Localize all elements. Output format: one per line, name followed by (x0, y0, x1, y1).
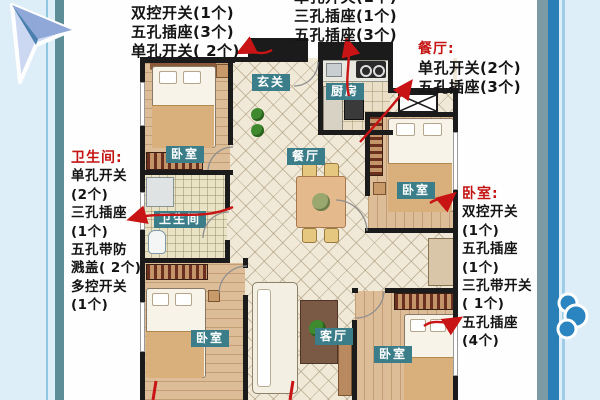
room-label-bedroom-bottom-left: 卧室 (191, 330, 229, 347)
frame-right-gray-stripe (537, 0, 548, 400)
annotation-item: 溅盖( 2个) (71, 259, 141, 277)
annotation-item: 三孔插座 (71, 204, 141, 222)
dining-chair (324, 228, 339, 243)
annotation-item: 单孔开关(2个) (418, 59, 521, 78)
stove (356, 61, 386, 78)
annotation-item: 五孔插座 (462, 314, 532, 332)
bed (152, 66, 216, 148)
annotation-item-clipped: 单孔开关(1个) (294, 0, 397, 7)
room-label-dining: 餐厅 (287, 148, 325, 165)
wall-segment (318, 130, 393, 135)
room-label-bedroom-right: 卧室 (397, 182, 435, 199)
room-label-living: 客厅 (315, 328, 353, 345)
nightstand (373, 182, 386, 195)
plant (251, 108, 264, 121)
wardrobe (146, 264, 208, 280)
annotation-item: 五孔插座(3个) (131, 23, 240, 42)
window (453, 322, 458, 376)
screenshot-root: 玄关 厨房 餐厅 卧室 卫生间 卧室 卧室 客厅 卧室 (0, 0, 600, 400)
plant (251, 124, 264, 137)
wall-segment (352, 288, 358, 293)
annotation-item: (4个) (462, 332, 532, 350)
annotation-header: 卫生间: (71, 149, 141, 167)
annotation-item: 五孔带防 (71, 241, 141, 259)
annotation-item: 双控开关 (462, 203, 532, 221)
dining-table (296, 176, 346, 228)
room-label-bedroom-top-left: 卧室 (166, 146, 204, 163)
wall-segment (243, 258, 248, 268)
wall-segment (140, 170, 233, 175)
annotation-item: (1个) (462, 259, 532, 277)
frame-right-light-line (562, 0, 565, 400)
window (140, 82, 145, 126)
annotation-item: 三孔插座(1个) (294, 7, 397, 26)
annotation-item: (1个) (71, 296, 141, 314)
annotation-item: 单孔开关( 2个) (131, 42, 240, 61)
wall-segment (140, 258, 230, 263)
annotation-item: 五孔插座 (462, 240, 532, 258)
wall-segment (365, 112, 370, 196)
toilet (148, 230, 166, 254)
wardrobe (369, 116, 383, 176)
wardrobe (394, 293, 454, 310)
annotation-dining: 餐厅: 单孔开关(2个) 五孔插座(3个) (418, 40, 521, 97)
dresser (428, 238, 454, 286)
wall-segment (228, 60, 233, 145)
wall-segment (365, 228, 457, 233)
nightstand (208, 290, 220, 302)
frame-right-blue-stripe (548, 0, 559, 400)
wall-segment (318, 60, 323, 135)
room-label-bedroom-bottom-right: 卧室 (374, 346, 412, 363)
annotation-item: (2个) (71, 186, 141, 204)
dining-chair (302, 228, 317, 243)
wall-segment (243, 295, 248, 400)
annotation-header: 餐厅: (418, 40, 521, 59)
wall-segment (225, 170, 230, 210)
annotation-header: 卧室: (462, 185, 532, 203)
wall-segment (385, 288, 457, 293)
room-label-kitchen: 厨房 (326, 83, 364, 100)
room-label-entry: 玄关 (252, 74, 290, 91)
kitchen-sink (326, 63, 342, 77)
room-label-bathroom: 卫生间 (154, 211, 206, 228)
annotation-item: 三孔带开关 (462, 277, 532, 295)
annotation-item: ( 1个) (462, 295, 532, 313)
annotation-item: 多控开关 (71, 278, 141, 296)
annotation-top-left: 卧室: 双控开关(1个) 五孔插座(3个) 单孔开关( 2个) (131, 0, 240, 61)
sofa (252, 282, 298, 394)
annotation-item: (1个) (462, 222, 532, 240)
annotation-bathroom: 卫生间: 单孔开关 (2个) 三孔插座 (1个) 五孔带防 溅盖( 2个) 多控… (71, 149, 141, 315)
annotation-item: (1个) (71, 223, 141, 241)
tv-console (338, 342, 352, 396)
annotation-item: 五孔插座(3个) (294, 26, 397, 45)
frame-left-thin-line (46, 0, 48, 400)
window (453, 132, 458, 190)
annotation-bedroom-right: 卧室: 双控开关 (1个) 五孔插座 (1个) 三孔带开关 ( 1个) 五孔插座… (462, 185, 532, 351)
annotation-item: 五孔插座(3个) (418, 78, 521, 97)
frame-left-teal-stripe (55, 0, 64, 400)
annotation-item: 单孔开关 (71, 167, 141, 185)
annotation-item: 双控开关(1个) (131, 4, 240, 23)
annotation-top-middle: 单孔开关(1个) 三孔插座(1个) 五孔插座(3个) (294, 0, 397, 45)
bathroom-counter (146, 177, 174, 207)
wall-segment (388, 42, 393, 92)
